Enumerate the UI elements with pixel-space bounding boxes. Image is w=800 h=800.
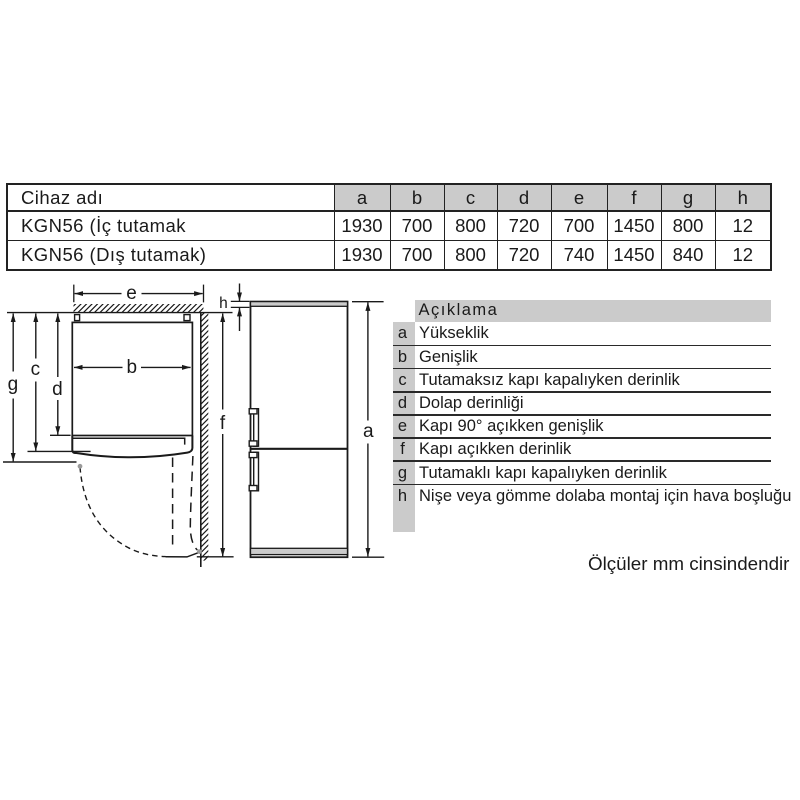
svg-text:e: e [126,283,137,304]
svg-text:f: f [220,413,226,434]
svg-text:h: h [219,295,228,312]
svg-text:d: d [52,379,63,400]
svg-text:g: g [8,374,19,395]
svg-text:c: c [31,359,41,380]
svg-text:a: a [363,421,374,442]
svg-text:b: b [127,357,138,378]
